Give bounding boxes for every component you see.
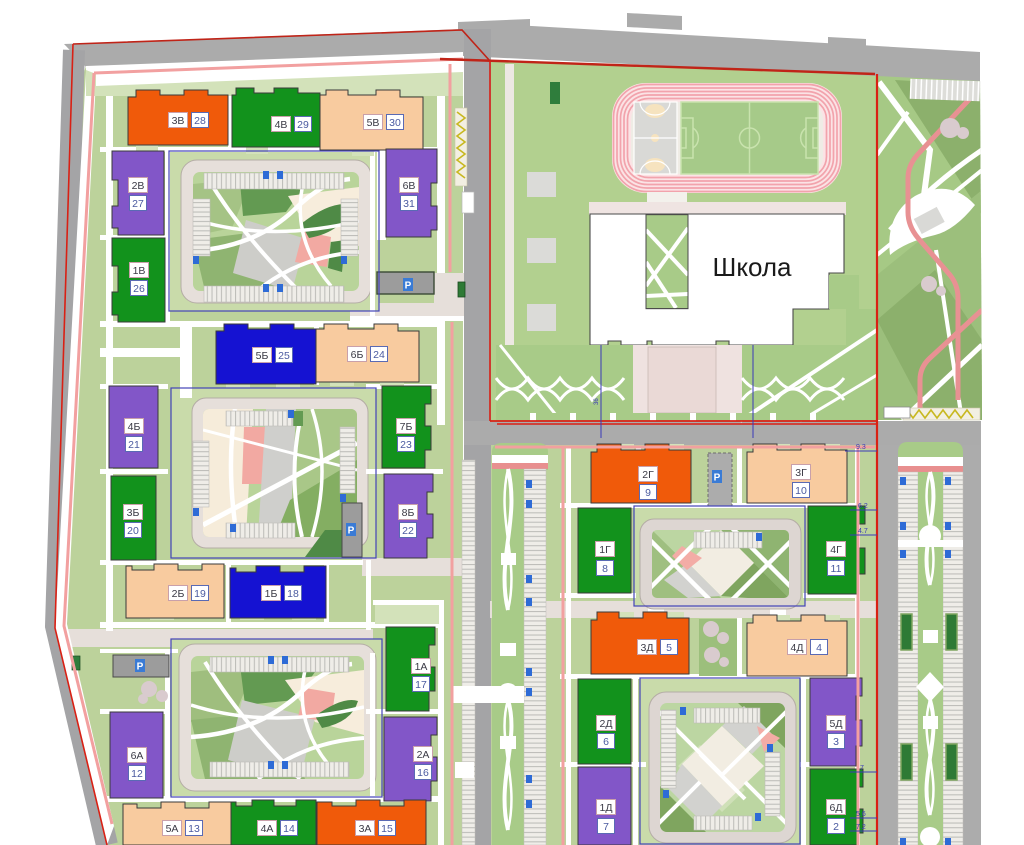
svg-text:3Д: 3Д <box>641 642 654 654</box>
svg-text:26: 26 <box>133 283 145 295</box>
svg-text:3А: 3А <box>359 823 372 835</box>
svg-text:16: 16 <box>417 767 429 779</box>
svg-text:4Б: 4Б <box>128 421 141 433</box>
svg-text:12: 12 <box>131 768 143 780</box>
svg-text:18: 18 <box>287 588 299 600</box>
svg-text:19: 19 <box>194 588 206 600</box>
svg-text:14: 14 <box>283 823 295 835</box>
svg-text:1Д: 1Д <box>600 802 613 814</box>
svg-text:P: P <box>405 281 412 292</box>
svg-text:1А: 1А <box>415 661 428 673</box>
svg-text:2Г: 2Г <box>642 469 654 481</box>
svg-text:4Д: 4Д <box>791 642 804 654</box>
svg-text:4А: 4А <box>261 823 274 835</box>
svg-text:27: 27 <box>132 198 144 210</box>
svg-text:1Б: 1Б <box>265 588 278 600</box>
svg-text:2: 2 <box>833 821 839 833</box>
svg-text:P: P <box>348 526 355 537</box>
svg-text:P: P <box>137 662 144 673</box>
svg-text:24: 24 <box>373 349 385 361</box>
svg-text:8: 8 <box>602 563 608 575</box>
svg-text:1В: 1В <box>133 265 146 277</box>
svg-text:2Д: 2Д <box>600 718 613 730</box>
svg-text:3Б: 3Б <box>127 507 140 519</box>
svg-text:7: 7 <box>603 821 609 833</box>
svg-text:2Б: 2Б <box>172 588 185 600</box>
svg-text:11: 11 <box>831 563 842 575</box>
svg-text:3Г: 3Г <box>795 467 807 479</box>
svg-text:6Д: 6Д <box>830 802 843 814</box>
svg-text:28: 28 <box>194 115 206 127</box>
svg-text:4.7: 4.7 <box>858 528 868 535</box>
svg-text:5.6: 5.6 <box>856 811 866 818</box>
svg-text:17: 17 <box>415 679 427 691</box>
svg-text:4: 4 <box>816 642 822 654</box>
svg-text:5Б: 5Б <box>256 350 269 362</box>
svg-text:5Д: 5Д <box>830 718 843 730</box>
svg-text:25: 25 <box>278 350 290 362</box>
svg-text:21: 21 <box>128 439 140 451</box>
svg-text:6А: 6А <box>131 750 144 762</box>
svg-text:1Г: 1Г <box>599 544 611 556</box>
svg-text:22: 22 <box>402 525 414 537</box>
svg-text:29: 29 <box>297 119 309 131</box>
svg-text:30: 30 <box>389 117 401 129</box>
svg-text:7.2: 7.2 <box>856 824 866 831</box>
svg-text:6.2: 6.2 <box>858 503 868 510</box>
svg-text:P: P <box>714 473 721 484</box>
svg-text:9.3: 9.3 <box>856 444 866 451</box>
svg-text:5В: 5В <box>367 117 380 129</box>
svg-text:3: 3 <box>833 736 839 748</box>
svg-text:4В: 4В <box>275 119 288 131</box>
svg-text:Школа: Школа <box>712 252 792 282</box>
svg-text:15: 15 <box>381 823 393 835</box>
svg-text:7: 7 <box>860 765 864 772</box>
svg-text:7Б: 7Б <box>400 421 413 433</box>
svg-text:5: 5 <box>666 642 672 654</box>
svg-text:6Б: 6Б <box>351 349 364 361</box>
svg-text:31: 31 <box>403 198 415 210</box>
svg-text:20: 20 <box>127 525 139 537</box>
svg-text:36: 36 <box>594 398 600 405</box>
svg-text:5А: 5А <box>166 823 179 835</box>
svg-text:6: 6 <box>603 736 609 748</box>
svg-text:8Б: 8Б <box>402 507 415 519</box>
svg-text:2А: 2А <box>417 749 430 761</box>
svg-text:13: 13 <box>188 823 200 835</box>
svg-text:2В: 2В <box>132 180 145 192</box>
svg-text:6В: 6В <box>403 180 416 192</box>
svg-text:4Г: 4Г <box>830 544 842 556</box>
svg-text:10: 10 <box>795 485 807 497</box>
svg-text:9: 9 <box>645 487 651 499</box>
svg-text:3В: 3В <box>172 115 185 127</box>
svg-text:23: 23 <box>400 439 412 451</box>
